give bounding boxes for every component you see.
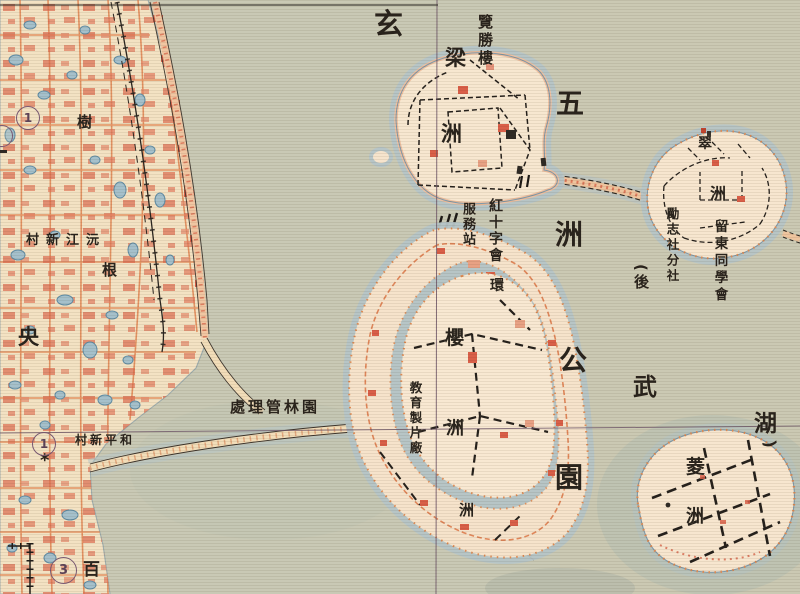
label-huanzhou-1: 環 xyxy=(490,279,504,293)
circled-marker-3: 3 xyxy=(50,557,77,584)
label-lingzhou-1: 菱 xyxy=(686,458,705,477)
edge-fragment xyxy=(0,150,7,153)
label-yuanjiang-village: 村新江沅 xyxy=(26,234,106,247)
label-huanzhou-2: 洲 xyxy=(459,503,474,518)
label-gen: 根 xyxy=(102,263,117,278)
label-park-char-gong: 公 xyxy=(559,347,587,375)
label-shu: 樹 xyxy=(77,115,92,130)
label-liangzhou-2: 洲 xyxy=(441,124,462,145)
map-canvas: 玄 武 湖 (後 ) 五 洲 公 園 梁 洲 翠 洲 環 洲 櫻 洲 菱 洲 覽… xyxy=(0,0,800,594)
label-lake-alt-hou: (後 xyxy=(633,264,648,292)
label-park-admin-office: 處理管林園 xyxy=(230,400,320,415)
label-bai: 百 xyxy=(83,562,100,579)
label-park-char-zhou: 洲 xyxy=(555,221,583,249)
label-yang: 央 xyxy=(18,327,39,348)
map-artwork xyxy=(0,0,800,594)
circled-marker-1b: 1 xyxy=(32,432,56,456)
label-lingzhou-2: 洲 xyxy=(686,508,704,526)
label-edu-film-studio: 教育製片廠 xyxy=(408,381,421,456)
label-lake-xuan: 玄 xyxy=(374,10,403,39)
label-yingzhou-2: 洲 xyxy=(446,420,464,438)
label-lizhishe-branch: 勵志社分社 xyxy=(665,207,678,285)
island-lingzhou xyxy=(637,430,794,572)
circled-marker-1a: 1 xyxy=(16,106,40,130)
tiny-annotation-mark xyxy=(541,158,547,166)
label-lanshenglou: 覽勝樓 xyxy=(477,14,492,68)
label-park-char-wu: 五 xyxy=(556,90,584,118)
label-lake-wu: 武 xyxy=(633,375,657,399)
small-islet xyxy=(371,149,391,165)
label-liudong-assoc: 留東同學會 xyxy=(712,219,726,304)
label-heping-village: 村新平和 xyxy=(75,434,135,446)
label-red-cross-line2: 服務站 xyxy=(461,202,474,247)
label-red-cross-line1: 紅十字會 xyxy=(488,198,502,264)
label-park-char-yuan: 園 xyxy=(555,464,583,492)
label-cuizhou-2: 洲 xyxy=(710,186,726,202)
label-yingzhou-1: 櫻 xyxy=(445,329,464,348)
label-liangzhou-1: 梁 xyxy=(445,48,466,69)
label-lake-hu: 湖 xyxy=(754,413,777,436)
label-cuizhou-1: 翠 xyxy=(698,137,712,151)
